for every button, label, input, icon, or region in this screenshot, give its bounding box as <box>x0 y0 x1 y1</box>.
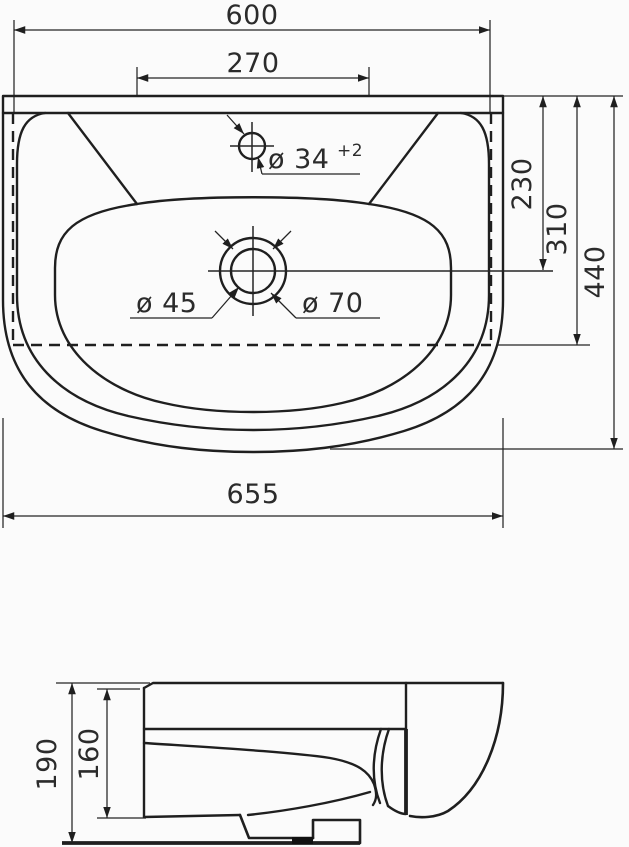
pointer-arrow-nw <box>215 231 233 249</box>
shelf-diagonal-left <box>68 113 137 204</box>
dim-600-label: 600 <box>225 0 278 31</box>
faucet-hole-tolerance: +2 <box>337 141 363 161</box>
leader-arrow <box>258 157 262 174</box>
leader-arrow-70 <box>271 293 296 318</box>
shelf-diagonal-right <box>369 113 438 204</box>
washbasin-technical-drawing: 600 270 <box>0 0 629 847</box>
top-view: 600 270 <box>3 0 623 528</box>
side-profile <box>62 683 503 844</box>
faucet-hole: ø 34 +2 <box>227 115 363 175</box>
dimension-270: 270 <box>137 48 369 96</box>
pointer-arrow-ne <box>273 231 291 249</box>
faucet-hole-label: ø 34 <box>268 144 329 175</box>
drain-inner-label: ø 45 <box>136 288 197 319</box>
drain-trap-left <box>240 815 313 838</box>
dimension-160: 160 <box>74 689 146 818</box>
bottom-back-edge <box>144 815 240 817</box>
leader-arrow-45 <box>212 287 239 318</box>
drain-trap-step <box>313 820 360 843</box>
dimension-230: 230 <box>507 96 543 270</box>
dim-270-label: 270 <box>226 48 279 79</box>
dim-190-label: 190 <box>32 737 63 790</box>
side-view: 190 160 <box>32 683 503 844</box>
dim-655-label: 655 <box>226 479 279 510</box>
basin-floor <box>248 792 370 815</box>
dim-160-label: 160 <box>74 727 105 780</box>
front-wall-base <box>388 806 406 814</box>
dimension-655: 655 <box>3 418 503 528</box>
back-rim-strip <box>3 96 503 113</box>
drain-outer-label: ø 70 <box>302 288 363 319</box>
dim-440-label: 440 <box>580 245 611 298</box>
basin-front-wall-inner <box>382 729 389 806</box>
top-surface <box>144 683 503 688</box>
dim-230-label: 230 <box>507 157 538 210</box>
drawing-canvas: 600 270 <box>0 0 629 847</box>
basin-inner-edge <box>144 743 376 805</box>
dimension-440: 440 <box>330 96 623 449</box>
pointer-arrow <box>227 115 244 134</box>
drain-pipe-stub <box>292 837 313 844</box>
front-apron-curve <box>410 683 503 817</box>
dim-310-label: 310 <box>542 202 573 255</box>
